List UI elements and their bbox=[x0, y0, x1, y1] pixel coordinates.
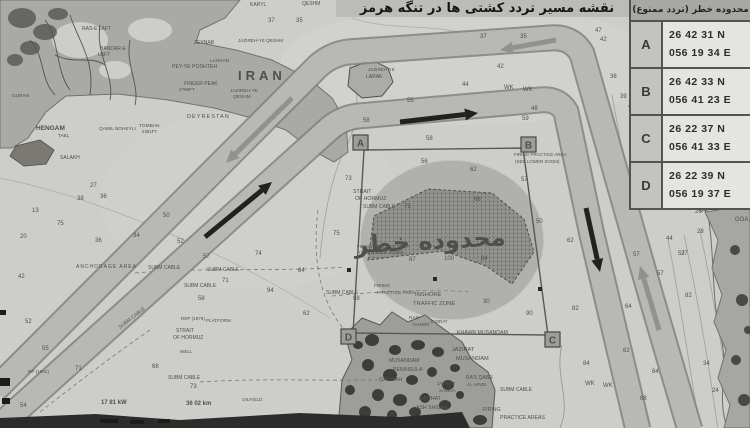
map-label: INSHORE bbox=[415, 292, 442, 298]
map-label: STRAIT bbox=[353, 189, 372, 195]
map-label: 17 81 kW bbox=[101, 400, 127, 406]
depth-sounding: 52 bbox=[25, 319, 32, 325]
table-point-coords: 26 22 37 N056 41 33 E bbox=[663, 116, 750, 161]
table-row: A26 42 31 N056 19 34 E bbox=[631, 20, 750, 67]
depth-sounding: 62 bbox=[623, 348, 630, 354]
map-label: SUBM CABLE bbox=[184, 283, 217, 289]
depth-sounding: 37 bbox=[681, 251, 688, 257]
map-label: MUSANDAM bbox=[456, 356, 489, 362]
longitude-value: 056 19 37 E bbox=[669, 185, 750, 203]
depth-sounding: 36 bbox=[100, 194, 107, 200]
table-row: D26 22 39 N056 19 37 E bbox=[631, 161, 750, 208]
map-label: JAZIRAT bbox=[437, 381, 455, 386]
depth-sounding: 38 bbox=[77, 196, 84, 202]
cable-marker bbox=[433, 277, 437, 281]
table-rows: A26 42 31 N056 19 34 EB26 42 33 N056 41 … bbox=[631, 20, 750, 208]
depth-sounding: 84 bbox=[583, 361, 590, 367]
map-label: JAZIREH-YE QESHM bbox=[238, 38, 283, 43]
map-label: DAWHAT bbox=[419, 396, 442, 402]
depth-sounding: 36 bbox=[95, 238, 102, 244]
depth-sounding: 39 bbox=[620, 94, 627, 100]
longitude-value: 056 19 34 E bbox=[669, 44, 750, 62]
map-label: TAHERI bbox=[412, 322, 429, 328]
map-label: PRACTICE AREA bbox=[377, 290, 416, 296]
depth-sounding: WK bbox=[603, 383, 613, 389]
edge-mark bbox=[0, 378, 10, 386]
danger-zone-coordinates-table: محدوده خطر (تردد ممنوع) A26 42 31 N056 1… bbox=[629, 0, 750, 210]
terrain-patch bbox=[473, 415, 487, 425]
map-label: WELL bbox=[180, 349, 193, 354]
depth-sounding: 58 bbox=[363, 118, 370, 124]
terrain-patch bbox=[372, 389, 384, 401]
depth-sounding: 47 bbox=[595, 28, 602, 34]
latitude-value: 26 42 33 N bbox=[669, 73, 750, 91]
depth-sounding: 57 bbox=[633, 252, 640, 258]
edge-mark bbox=[0, 310, 6, 315]
terrain-patch bbox=[730, 245, 740, 255]
depth-sounding: 68 bbox=[152, 364, 159, 370]
terrain-patch bbox=[48, 8, 68, 20]
map-label: SAWDA bbox=[439, 388, 457, 393]
map-label: QESHM bbox=[302, 1, 320, 7]
terrain-patch bbox=[406, 375, 418, 385]
map-label: PRACTICE AREAS bbox=[500, 415, 546, 421]
map-label: JAZIREH-YE bbox=[368, 67, 395, 72]
table-row: B26 42 33 N056 41 23 E bbox=[631, 67, 750, 114]
map-label: SALAKH bbox=[60, 155, 80, 161]
map-label: PEY-YE POSHTEH bbox=[172, 64, 217, 70]
map-label: OILFIELD bbox=[242, 397, 263, 402]
map-label: OF HORMUZ bbox=[173, 335, 203, 341]
terrain-patch bbox=[128, 18, 172, 42]
terrain-patch bbox=[365, 334, 379, 346]
depth-sounding: 64 bbox=[652, 369, 659, 375]
table-header: محدوده خطر (تردد ممنوع) bbox=[631, 0, 750, 20]
map-label: GURAN bbox=[12, 93, 30, 99]
map-label: ANCHORAGE AREA bbox=[76, 264, 137, 270]
depth-sounding: 94 bbox=[267, 288, 274, 294]
map-label: SUBM CABLE bbox=[207, 267, 240, 273]
terrain-patch bbox=[456, 391, 464, 399]
map-label: QESHM bbox=[233, 94, 251, 100]
depth-sounding: 59 bbox=[522, 116, 529, 122]
depth-sounding: 37 bbox=[268, 18, 275, 24]
map-label: OF HORMUZ bbox=[355, 196, 386, 202]
map-label: JAZIRAT bbox=[430, 319, 448, 324]
depth-sounding: 75 bbox=[404, 204, 411, 210]
depth-sounding: 62 bbox=[470, 167, 477, 173]
depth-sounding: 98 bbox=[353, 296, 360, 302]
map-label: PENINSULA bbox=[393, 367, 423, 373]
depth-sounding: 48 bbox=[531, 106, 538, 112]
depth-sounding: 52 bbox=[177, 239, 184, 245]
map-label: ASH SHISAH bbox=[416, 405, 448, 411]
longitude-value: 056 41 33 E bbox=[669, 138, 750, 156]
depth-sounding: 82 bbox=[685, 293, 692, 299]
depth-sounding: 42 bbox=[497, 64, 504, 70]
map-label: JAZIREH-YE bbox=[230, 88, 258, 94]
depth-sounding: 82 bbox=[572, 306, 579, 312]
depth-sounding: 55 bbox=[407, 98, 414, 104]
depth-sounding: 30 bbox=[483, 299, 490, 305]
map-label: SUBM CABLE bbox=[168, 375, 201, 381]
depth-sounding: 54 bbox=[20, 403, 27, 409]
terrain-patch bbox=[411, 340, 425, 350]
table-point-coords: 26 42 31 N056 19 34 E bbox=[663, 22, 750, 67]
terrain-patch bbox=[736, 294, 748, 306]
depth-sounding: 28 bbox=[697, 229, 704, 235]
corner-marker-B: B bbox=[525, 141, 532, 152]
map-label: RAS-E LAFT bbox=[82, 26, 111, 32]
terrain-patch bbox=[362, 359, 374, 371]
map-label: FIRING bbox=[374, 283, 391, 289]
depth-sounding: 44 bbox=[666, 236, 673, 242]
table-point-coords: 26 22 39 N056 19 37 E bbox=[663, 163, 750, 208]
depth-sounding: 57 bbox=[203, 254, 210, 260]
map-label: KHAWR MUSANDAM bbox=[457, 330, 508, 336]
terrain-patch bbox=[345, 385, 355, 395]
map-label: SUBM CABLE bbox=[326, 290, 359, 296]
depth-sounding: 87 bbox=[409, 257, 416, 263]
map-label: RP (1981) bbox=[28, 369, 49, 374]
depth-sounding: 74 bbox=[255, 251, 262, 257]
depth-sounding: 58 bbox=[426, 136, 433, 142]
table-point-letter: A bbox=[631, 22, 663, 67]
terrain-patch bbox=[389, 345, 401, 355]
terrain-patch bbox=[738, 394, 750, 406]
depth-sounding: 50 bbox=[536, 219, 543, 225]
depth-sounding: 50 bbox=[163, 213, 170, 219]
depth-sounding: 75 bbox=[333, 231, 340, 237]
map-label: LARAK bbox=[366, 74, 383, 80]
map-label: ZEYNAB bbox=[194, 40, 215, 46]
map-label: SUBM CABLE bbox=[363, 204, 396, 210]
depth-sounding: 42 bbox=[600, 37, 607, 43]
map-label: AL HINDI bbox=[467, 382, 486, 387]
map-label: HENGAM bbox=[36, 125, 65, 132]
depth-sounding: 35 bbox=[520, 34, 527, 40]
depth-sounding: 34 bbox=[133, 233, 140, 239]
depth-sounding: 90 bbox=[526, 311, 533, 317]
map-label: TRAFFIC ZONE bbox=[413, 301, 455, 307]
terrain-patch bbox=[432, 347, 444, 357]
depth-sounding: 34 bbox=[703, 361, 710, 367]
map-label: FIRING PRACTICE AREA bbox=[514, 152, 567, 157]
map-label: (SEE LOWER ZOOM) bbox=[515, 159, 560, 164]
latitude-value: 26 42 31 N bbox=[669, 26, 750, 44]
edge-mark bbox=[100, 419, 118, 423]
map-label: KARYL bbox=[250, 2, 267, 8]
map-label: FIRING bbox=[483, 407, 501, 413]
map-label: MUSANDAM bbox=[389, 358, 419, 364]
depth-sounding: WK bbox=[504, 85, 514, 91]
map-label: LAFT bbox=[98, 52, 110, 58]
map-label: DEYRESTAN bbox=[187, 114, 230, 120]
terrain-patch bbox=[20, 41, 40, 55]
map-label: SUBM CABLE bbox=[500, 387, 533, 393]
depth-sounding: 71 bbox=[75, 366, 82, 372]
table-point-coords: 26 42 33 N056 41 23 E bbox=[663, 69, 750, 114]
depth-sounding: 62 bbox=[303, 311, 310, 317]
corner-marker-C: C bbox=[549, 336, 556, 347]
table-row: C26 22 37 N056 41 33 E bbox=[631, 114, 750, 161]
map-label: REP (1976) bbox=[181, 316, 205, 321]
depth-sounding: 68 bbox=[640, 396, 647, 402]
page-title: نقشه مسیر تردد کشتی ها در تنگه هرمز bbox=[336, 0, 638, 17]
map-label: JAZIRAT bbox=[452, 347, 475, 353]
map-label: QAMIL BOHEYLI bbox=[99, 126, 136, 132]
depth-sounding: 71 bbox=[222, 278, 229, 284]
corner-marker-A: A bbox=[357, 139, 364, 150]
depth-sounding: 58 bbox=[198, 296, 205, 302]
depth-sounding: 44 bbox=[462, 82, 469, 88]
terrain-patch bbox=[450, 364, 460, 372]
terrain-patch bbox=[393, 394, 407, 406]
map-label: RA'S QABR bbox=[466, 375, 493, 381]
table-point-letter: C bbox=[631, 116, 663, 161]
depth-sounding: 57 bbox=[521, 177, 528, 183]
terrain-patch bbox=[8, 8, 36, 28]
terrain-patch bbox=[99, 61, 131, 79]
longitude-value: 056 41 23 E bbox=[669, 91, 750, 109]
depth-sounding: 73 bbox=[345, 176, 352, 182]
table-point-letter: B bbox=[631, 69, 663, 114]
edge-mark bbox=[2, 398, 10, 404]
depth-sounding: 37 bbox=[480, 34, 487, 40]
map-label: 2361FT bbox=[142, 129, 157, 134]
map-label: 2769FT bbox=[179, 87, 195, 92]
terrain-patch bbox=[427, 367, 437, 377]
map-label: 36 02 km bbox=[186, 401, 211, 407]
map-label: PLATFORM bbox=[206, 318, 231, 323]
map-label: TABL bbox=[58, 133, 70, 138]
cable-marker bbox=[347, 268, 351, 272]
depth-sounding: 20 bbox=[20, 234, 27, 240]
depth-sounding: 73 bbox=[190, 384, 197, 390]
terrain-patch bbox=[7, 54, 23, 66]
corner-marker-D: D bbox=[345, 333, 352, 344]
latitude-value: 26 22 37 N bbox=[669, 120, 750, 138]
map-label: STRAIT bbox=[176, 328, 194, 334]
map-label: IRAN bbox=[238, 68, 286, 83]
depth-sounding: 84 bbox=[298, 268, 305, 274]
depth-sounding: 42 bbox=[18, 274, 25, 280]
edge-mark bbox=[158, 419, 170, 423]
depth-sounding: 84 bbox=[481, 256, 488, 262]
latitude-value: 26 22 39 N bbox=[669, 167, 750, 185]
depth-sounding: 75 bbox=[57, 221, 64, 227]
depth-sounding: 55 bbox=[42, 346, 49, 352]
table-point-letter: D bbox=[631, 163, 663, 208]
depth-sounding: WK bbox=[585, 381, 595, 387]
depth-sounding: 64 bbox=[625, 304, 632, 310]
depth-sounding: 56 bbox=[421, 159, 428, 165]
map-label: RAS bbox=[409, 315, 419, 321]
depth-sounding: 57 bbox=[657, 271, 664, 277]
depth-sounding: 100 bbox=[444, 256, 455, 262]
edge-mark bbox=[130, 420, 144, 424]
depth-sounding: 27 bbox=[90, 183, 97, 189]
chart-photo: ABCD3735373547423839494442WKWK5558594858… bbox=[0, 0, 750, 428]
depth-sounding: GOA bbox=[735, 217, 748, 223]
depth-sounding: 38 bbox=[610, 74, 617, 80]
map-label: SUBM CABLE bbox=[148, 265, 181, 271]
depth-sounding: 24 bbox=[712, 388, 719, 394]
depth-sounding: 66 bbox=[474, 197, 481, 203]
depth-sounding: 35 bbox=[296, 18, 303, 24]
terrain-patch bbox=[731, 355, 741, 365]
cable-marker bbox=[538, 287, 542, 291]
depth-sounding: 13 bbox=[32, 208, 39, 214]
map-label: QABBAH bbox=[379, 377, 402, 383]
depth-sounding: WK bbox=[523, 87, 533, 93]
depth-sounding: 62 bbox=[567, 238, 574, 244]
